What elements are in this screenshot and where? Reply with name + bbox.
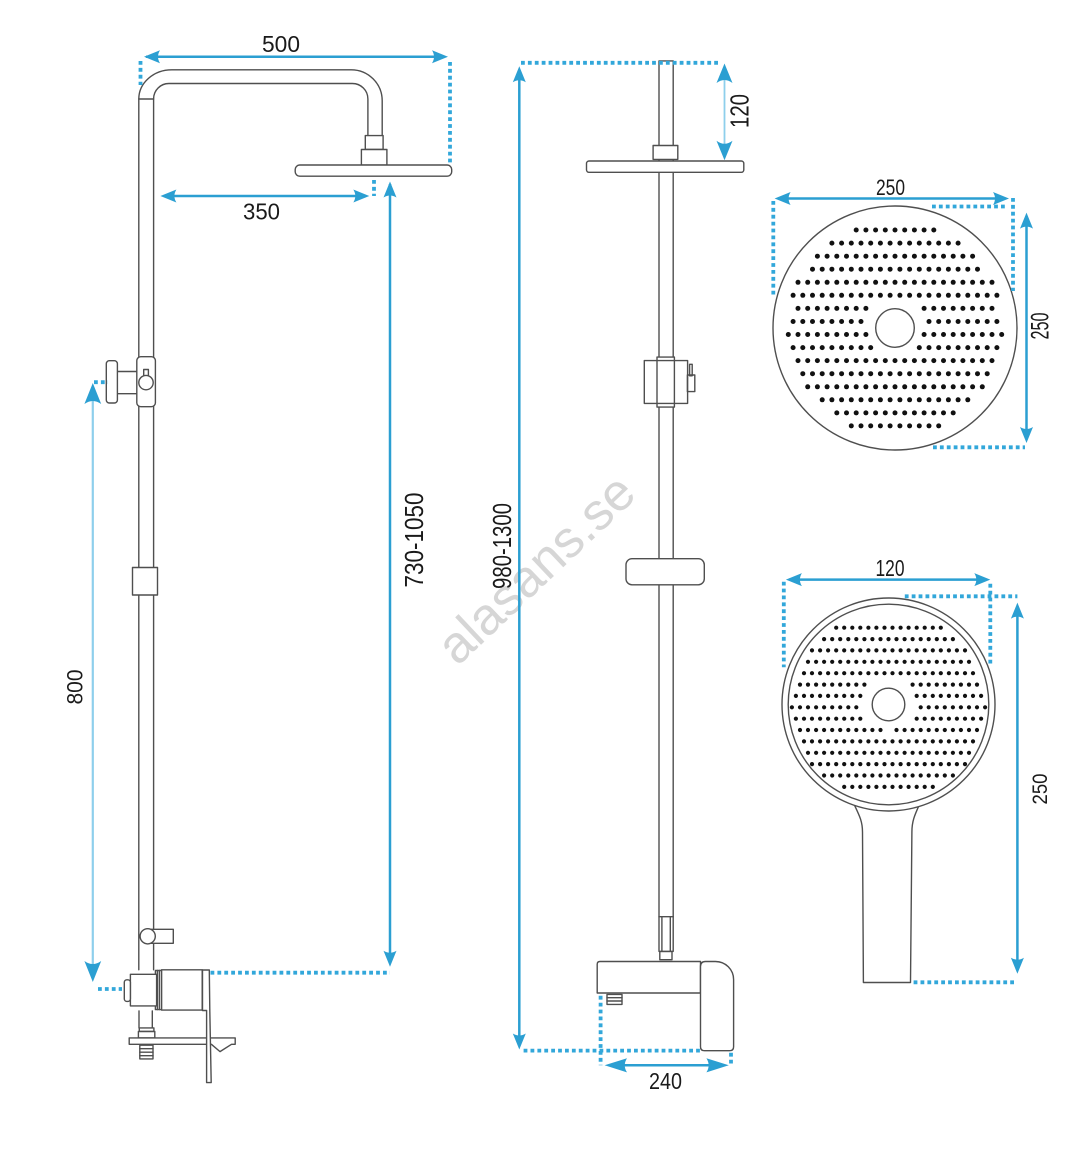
svg-text:250: 250 xyxy=(1027,313,1055,340)
svg-text:500: 500 xyxy=(262,31,300,57)
svg-text:250: 250 xyxy=(1029,774,1052,805)
svg-text:120: 120 xyxy=(725,94,755,128)
svg-text:240: 240 xyxy=(649,1068,682,1094)
svg-text:980-1300: 980-1300 xyxy=(487,503,517,589)
svg-text:350: 350 xyxy=(243,199,280,225)
svg-text:120: 120 xyxy=(876,555,905,581)
svg-text:730-1050: 730-1050 xyxy=(399,493,429,588)
svg-text:250: 250 xyxy=(876,175,905,200)
svg-text:800: 800 xyxy=(63,670,88,705)
